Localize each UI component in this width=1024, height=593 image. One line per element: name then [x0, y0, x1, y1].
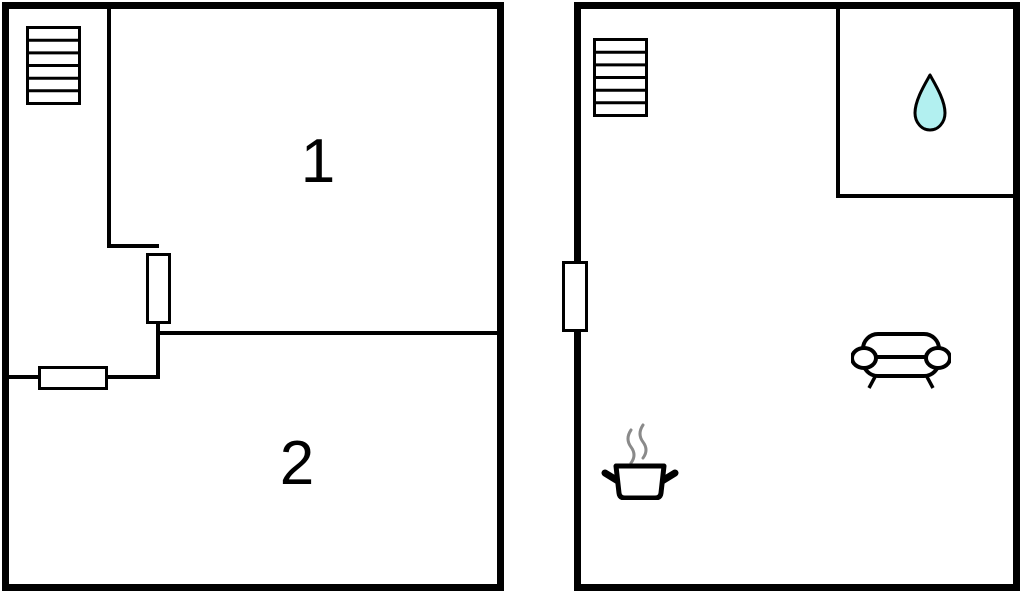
bathroom-wall-horizontal	[836, 194, 1013, 198]
staircase-icon	[26, 26, 81, 105]
left-plan-inner-wall-jog	[107, 244, 159, 248]
floor-plan-canvas: 1 2	[0, 0, 1024, 593]
door-symbol-vertical	[146, 253, 171, 324]
left-plan-room-divider-wall	[158, 331, 497, 335]
left-plan-wall-top	[2, 2, 504, 9]
water-drop-shape	[915, 75, 945, 130]
sofa-icon	[851, 330, 951, 390]
left-plan-wall-bottom	[2, 584, 504, 591]
pot-body	[616, 466, 664, 498]
left-plan-wall-left	[2, 2, 9, 591]
bathroom-wall-vertical	[836, 9, 840, 198]
left-plan-lower-wall-segment-b	[106, 375, 158, 379]
steam-line-left	[628, 430, 634, 463]
steam-line-right	[640, 425, 646, 458]
right-plan-wall-bottom	[574, 584, 1020, 591]
right-plan-wall-top	[574, 2, 1020, 9]
left-plan-inner-wall-vertical-upper	[107, 9, 111, 248]
staircase-icon	[593, 38, 648, 117]
door-symbol-entry	[562, 261, 588, 332]
room-label-2: 2	[280, 433, 314, 495]
left-plan-wall-right	[497, 2, 504, 591]
right-plan-wall-right	[1013, 2, 1020, 591]
left-plan-lower-wall-segment-a	[9, 375, 38, 379]
cooking-pot-icon	[600, 420, 680, 500]
water-drop-icon	[911, 72, 949, 134]
door-symbol-horizontal	[38, 366, 108, 390]
left-plan-inner-wall-vertical-lower	[156, 321, 160, 379]
room-label-1: 1	[301, 131, 335, 193]
